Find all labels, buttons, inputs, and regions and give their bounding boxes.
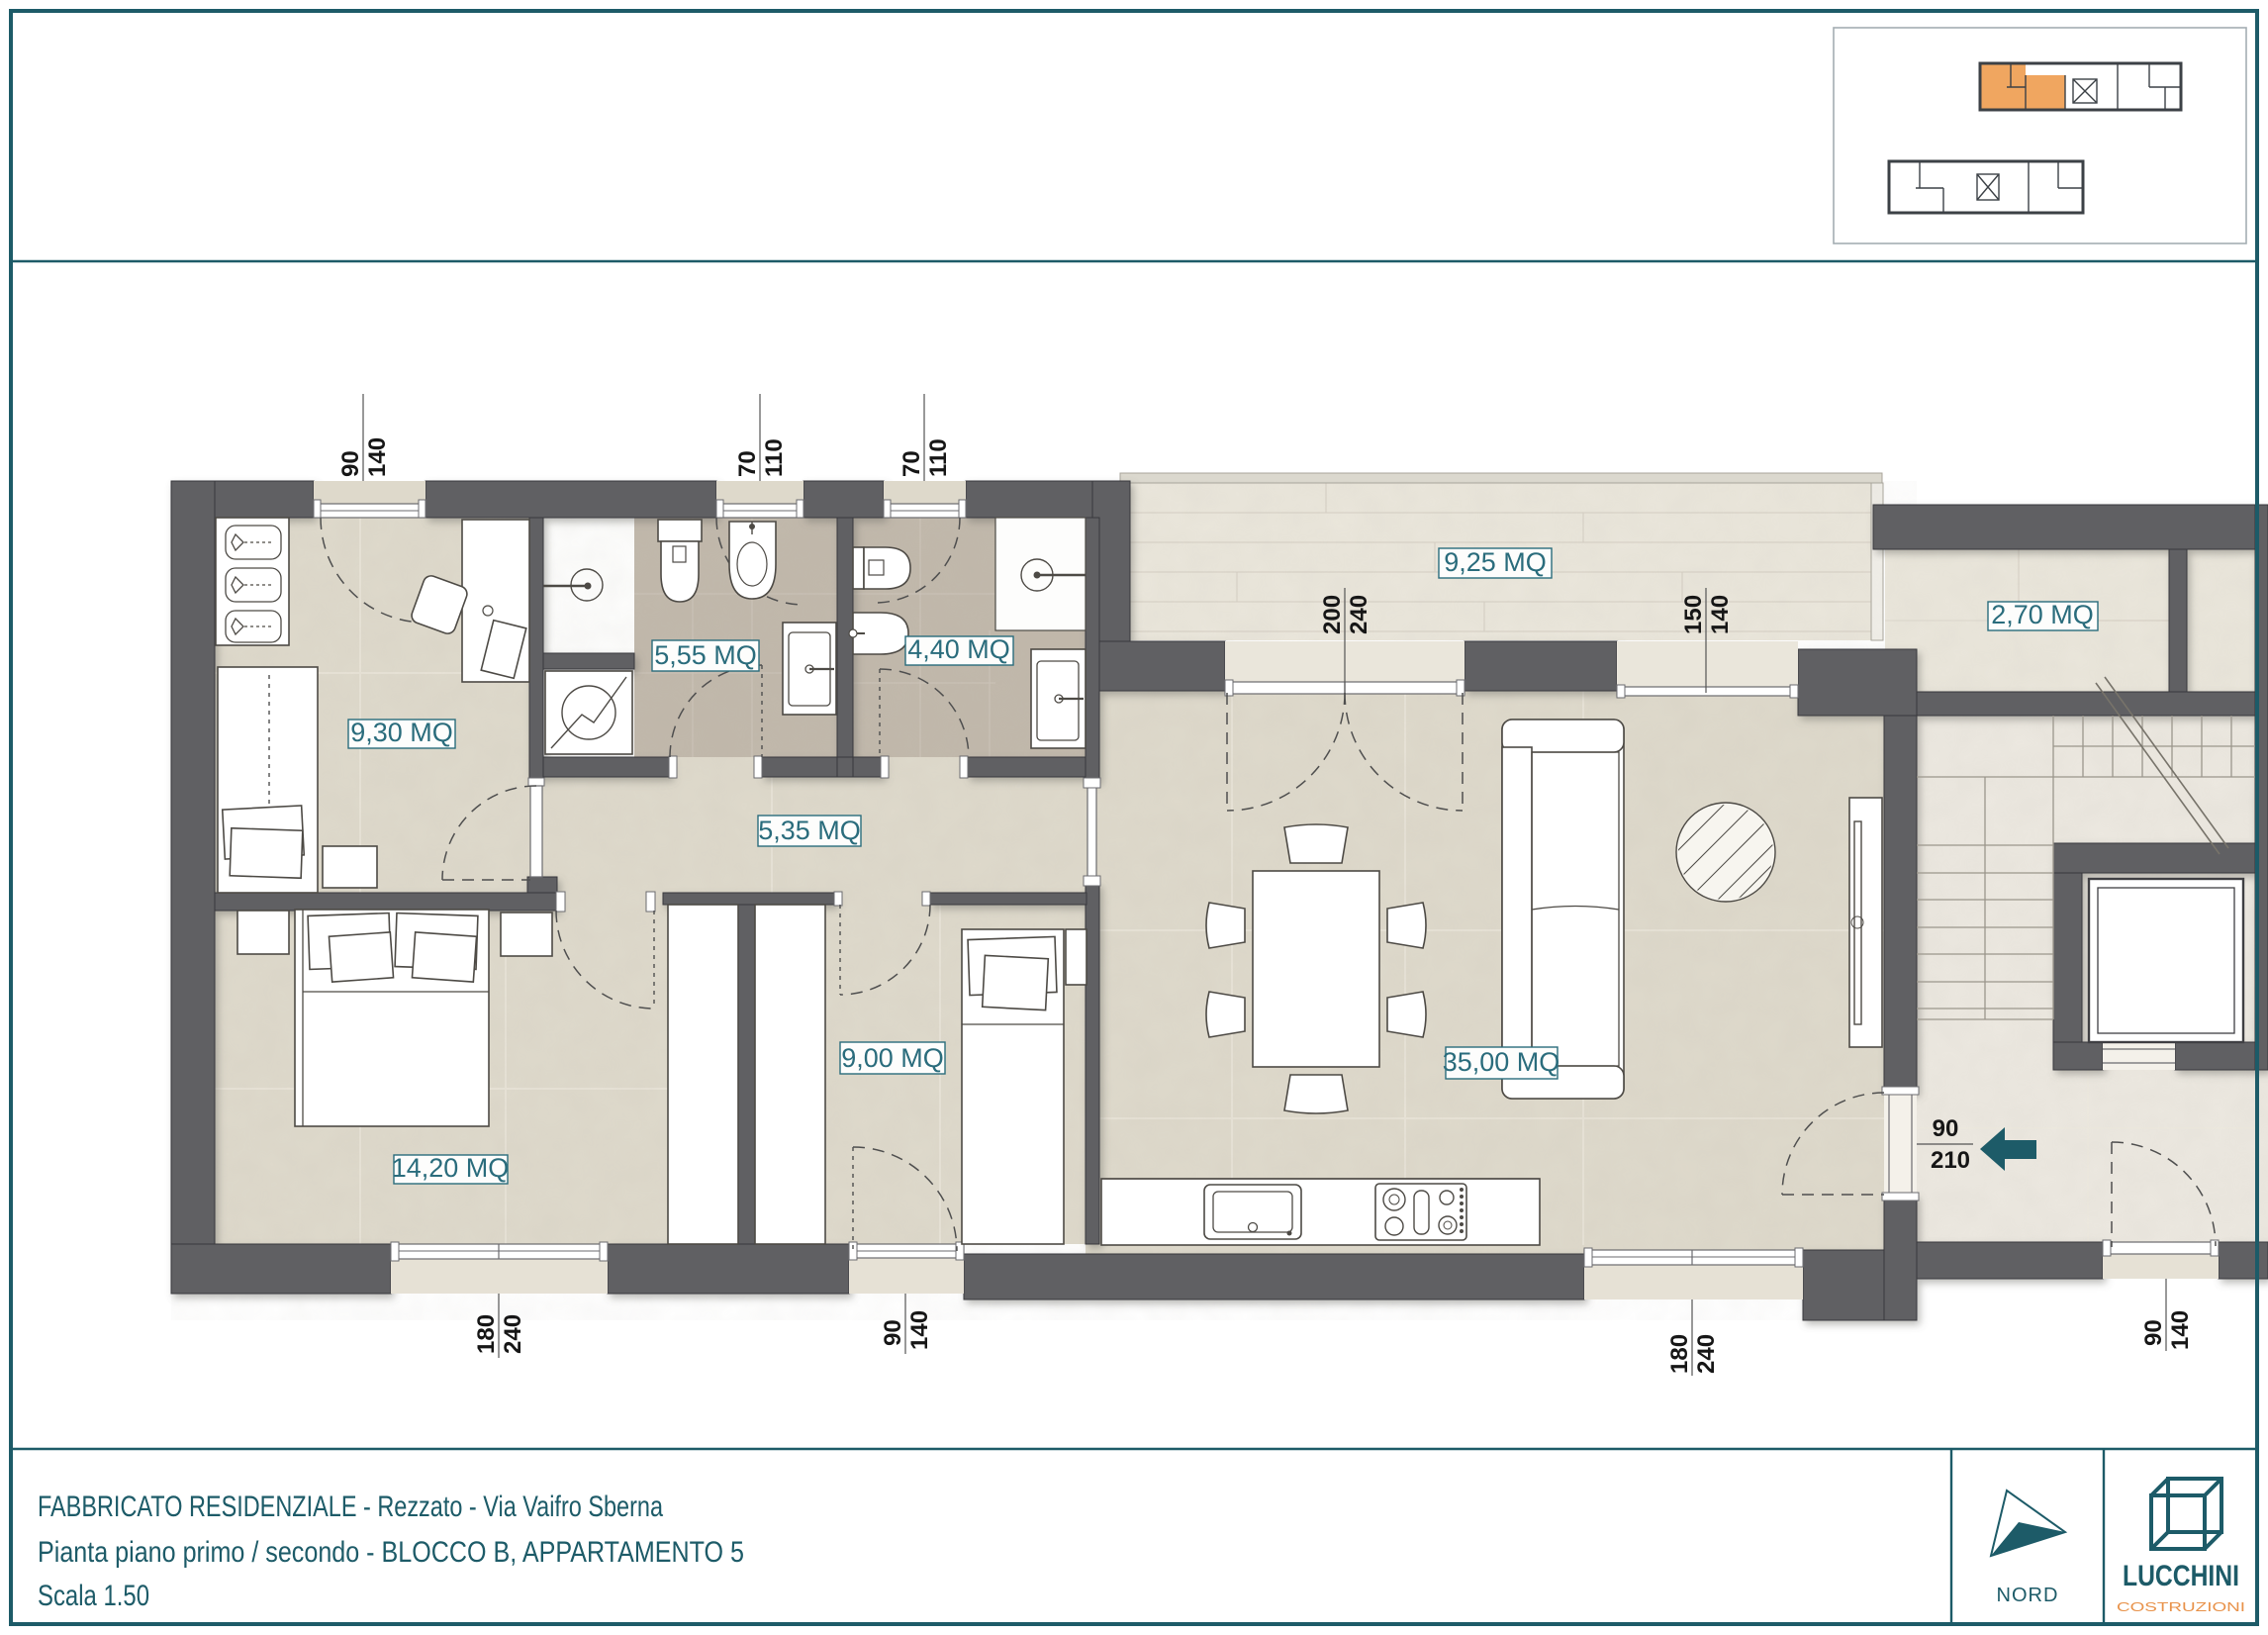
svg-text:90: 90	[337, 450, 364, 477]
svg-text:90: 90	[2140, 1319, 2167, 1346]
svg-text:2,70 MQ: 2,70 MQ	[1991, 600, 2094, 629]
svg-text:90: 90	[880, 1319, 906, 1346]
svg-text:140: 140	[2167, 1310, 2194, 1350]
svg-text:210: 210	[1931, 1147, 1970, 1174]
svg-text:240: 240	[500, 1314, 526, 1354]
svg-text:FABBRICATO RESIDENZIALE - Rezz: FABBRICATO RESIDENZIALE - Rezzato - Via …	[38, 1491, 663, 1523]
svg-text:Pianta piano primo / secondo -: Pianta piano primo / secondo - BLOCCO B,…	[38, 1536, 744, 1569]
svg-text:Scala 1.50: Scala 1.50	[38, 1580, 149, 1612]
svg-text:COSTRUZIONI: COSTRUZIONI	[2117, 1599, 2245, 1614]
svg-text:180: 180	[1666, 1334, 1693, 1374]
svg-text:70: 70	[898, 450, 925, 477]
svg-text:200: 200	[1319, 595, 1346, 634]
svg-text:LUCCHINI: LUCCHINI	[2123, 1560, 2239, 1592]
svg-text:70: 70	[734, 450, 761, 477]
svg-text:14,20 MQ: 14,20 MQ	[392, 1153, 510, 1183]
svg-text:110: 110	[925, 438, 952, 477]
svg-text:4,40 MQ: 4,40 MQ	[907, 634, 1010, 664]
svg-text:5,35 MQ: 5,35 MQ	[758, 816, 861, 845]
svg-text:180: 180	[473, 1314, 500, 1354]
svg-text:NORD: NORD	[1997, 1585, 2059, 1606]
svg-text:240: 240	[1693, 1334, 1720, 1374]
svg-text:140: 140	[906, 1310, 933, 1350]
svg-text:5,55 MQ: 5,55 MQ	[654, 640, 757, 670]
svg-text:90: 90	[1933, 1115, 1959, 1142]
svg-text:9,30 MQ: 9,30 MQ	[350, 718, 453, 747]
svg-text:9,25 MQ: 9,25 MQ	[1444, 547, 1547, 577]
svg-text:140: 140	[1707, 595, 1734, 634]
svg-text:140: 140	[364, 437, 391, 477]
svg-text:110: 110	[761, 438, 788, 477]
svg-text:35,00 MQ: 35,00 MQ	[1443, 1047, 1560, 1077]
svg-text:150: 150	[1680, 595, 1707, 634]
svg-text:9,00 MQ: 9,00 MQ	[841, 1043, 944, 1073]
svg-text:240: 240	[1346, 595, 1372, 634]
